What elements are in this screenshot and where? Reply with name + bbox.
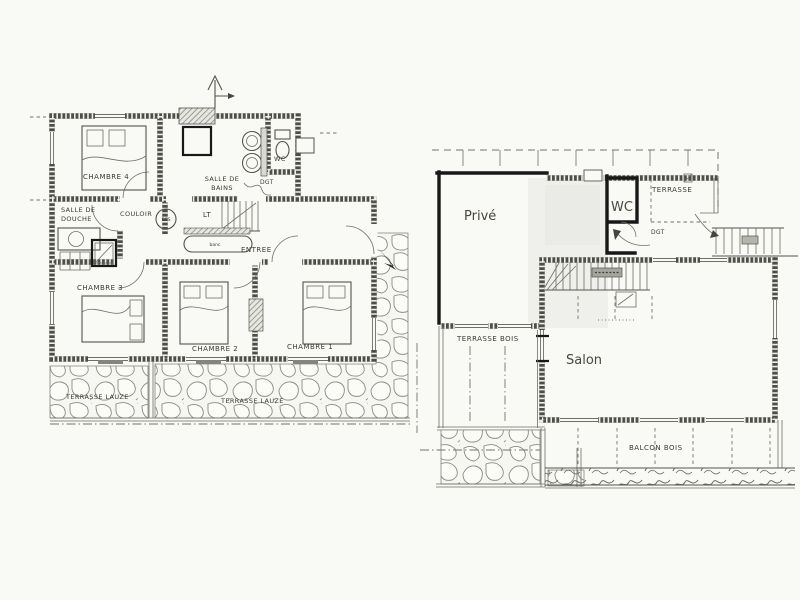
floor-plan-sheet: CHAMBRE 4 SALLE DE BAINS WC DGT SALLE DE… [0,0,800,600]
bed-chambre-1 [303,282,351,344]
label-douche-2: DOUCHE [61,215,92,223]
ground-floor-plan: CHAMBRE 4 SALLE DE BAINS WC DGT SALLE DE… [30,76,417,433]
label-dgt-upper: DGT [651,229,665,236]
exterior-stairs [695,214,798,256]
balcon-bois-area [545,420,795,488]
label-chambre-2: CHAMBRE 2 [192,345,238,353]
bathroom-fixtures [243,128,291,176]
label-couloir: COULOIR [120,210,152,218]
label-banc: banc [210,242,221,248]
entry-stairs [220,201,260,231]
windows [49,113,378,365]
label-terrasse-bois: TERRASSE BOIS [456,335,519,343]
label-chambre-1: CHAMBRE 1 [287,343,333,351]
label-prive: Privé [464,209,496,224]
label-salle-de-bains-2: BAINS [211,184,233,192]
upper-floor-plan: Privé WC TERRASSE DGT Salon TERRASSE BOI… [420,150,798,488]
label-terrasse-lauze-south: TERRASSE LAUZE [220,397,284,405]
label-douche-1: SALLE DE [61,206,95,214]
label-chambre-3: CHAMBRE 3 [77,284,123,292]
scan-smudge [545,185,600,245]
north-arrow-icon [208,76,235,108]
label-ecs: ECS [162,217,171,223]
label-dgt-ground: DGT [260,179,274,186]
terrasse-area [651,174,718,222]
label-wc-ground: WC [274,155,286,163]
label-wc-upper: WC [611,200,633,215]
label-salle-de-bains-1: SALLE DE [205,175,239,183]
label-salon: Salon [566,353,602,368]
label-terrasse-lauze-west: TERRASSE LAUZE [65,393,129,401]
label-chambre-4: CHAMBRE 4 [83,173,129,181]
label-balcon-bois: BALCON BOIS [629,444,683,452]
floor-plan-drawing: CHAMBRE 4 SALLE DE BAINS WC DGT SALLE DE… [0,0,800,600]
label-terrasse: TERRASSE [651,186,692,194]
label-lt: LT [203,211,211,219]
masonry-column [249,299,263,331]
terrasse-lauze-west-area [50,366,148,418]
bed-chambre-2 [180,282,228,344]
wc-door-swing [613,222,650,246]
label-entree: ENTREE [241,246,272,254]
bed-chambre-3 [82,296,144,342]
chimney [179,108,215,155]
